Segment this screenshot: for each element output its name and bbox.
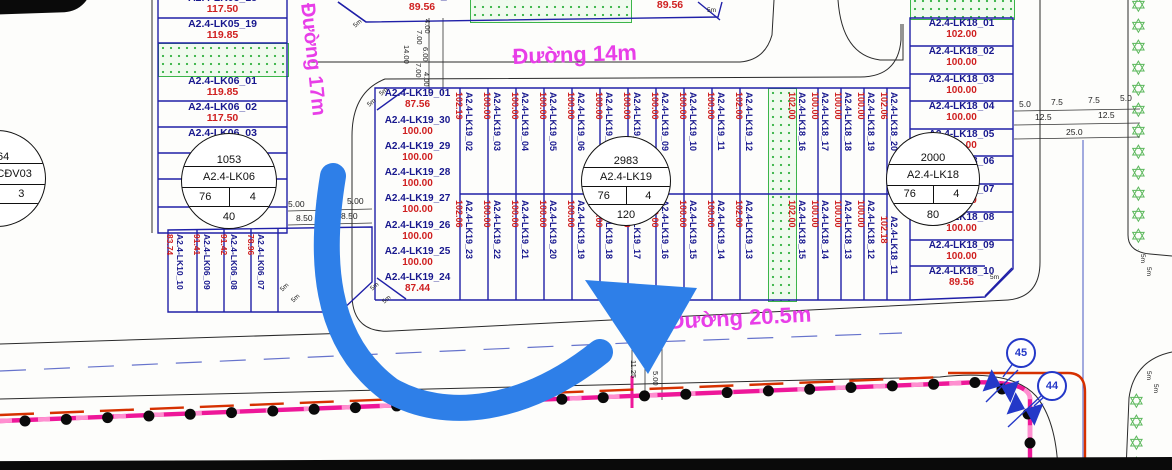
cadastral-map: ✡ ✡ ✡ ✡ ✡ ✡ ✡ ✡ ✡ ✡ ✡ ✡ ✡ ✡ ✡ ✡ ✡ ✡ ✡ ✡ …	[0, 0, 1172, 470]
arrow-annotation-icon	[0, 0, 1172, 470]
